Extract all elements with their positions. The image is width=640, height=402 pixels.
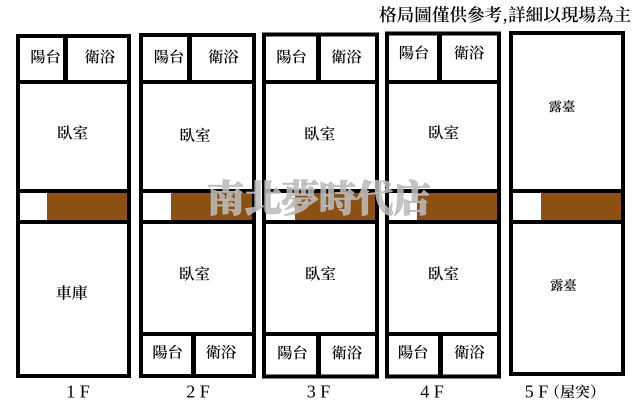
svg-text:5 F: 5 F (525, 382, 549, 402)
svg-text:4 F: 4 F (420, 382, 444, 402)
svg-text:3 F: 3 F (307, 382, 331, 402)
svg-text:2 F: 2 F (186, 382, 210, 402)
svg-text:1 F: 1 F (66, 382, 90, 402)
